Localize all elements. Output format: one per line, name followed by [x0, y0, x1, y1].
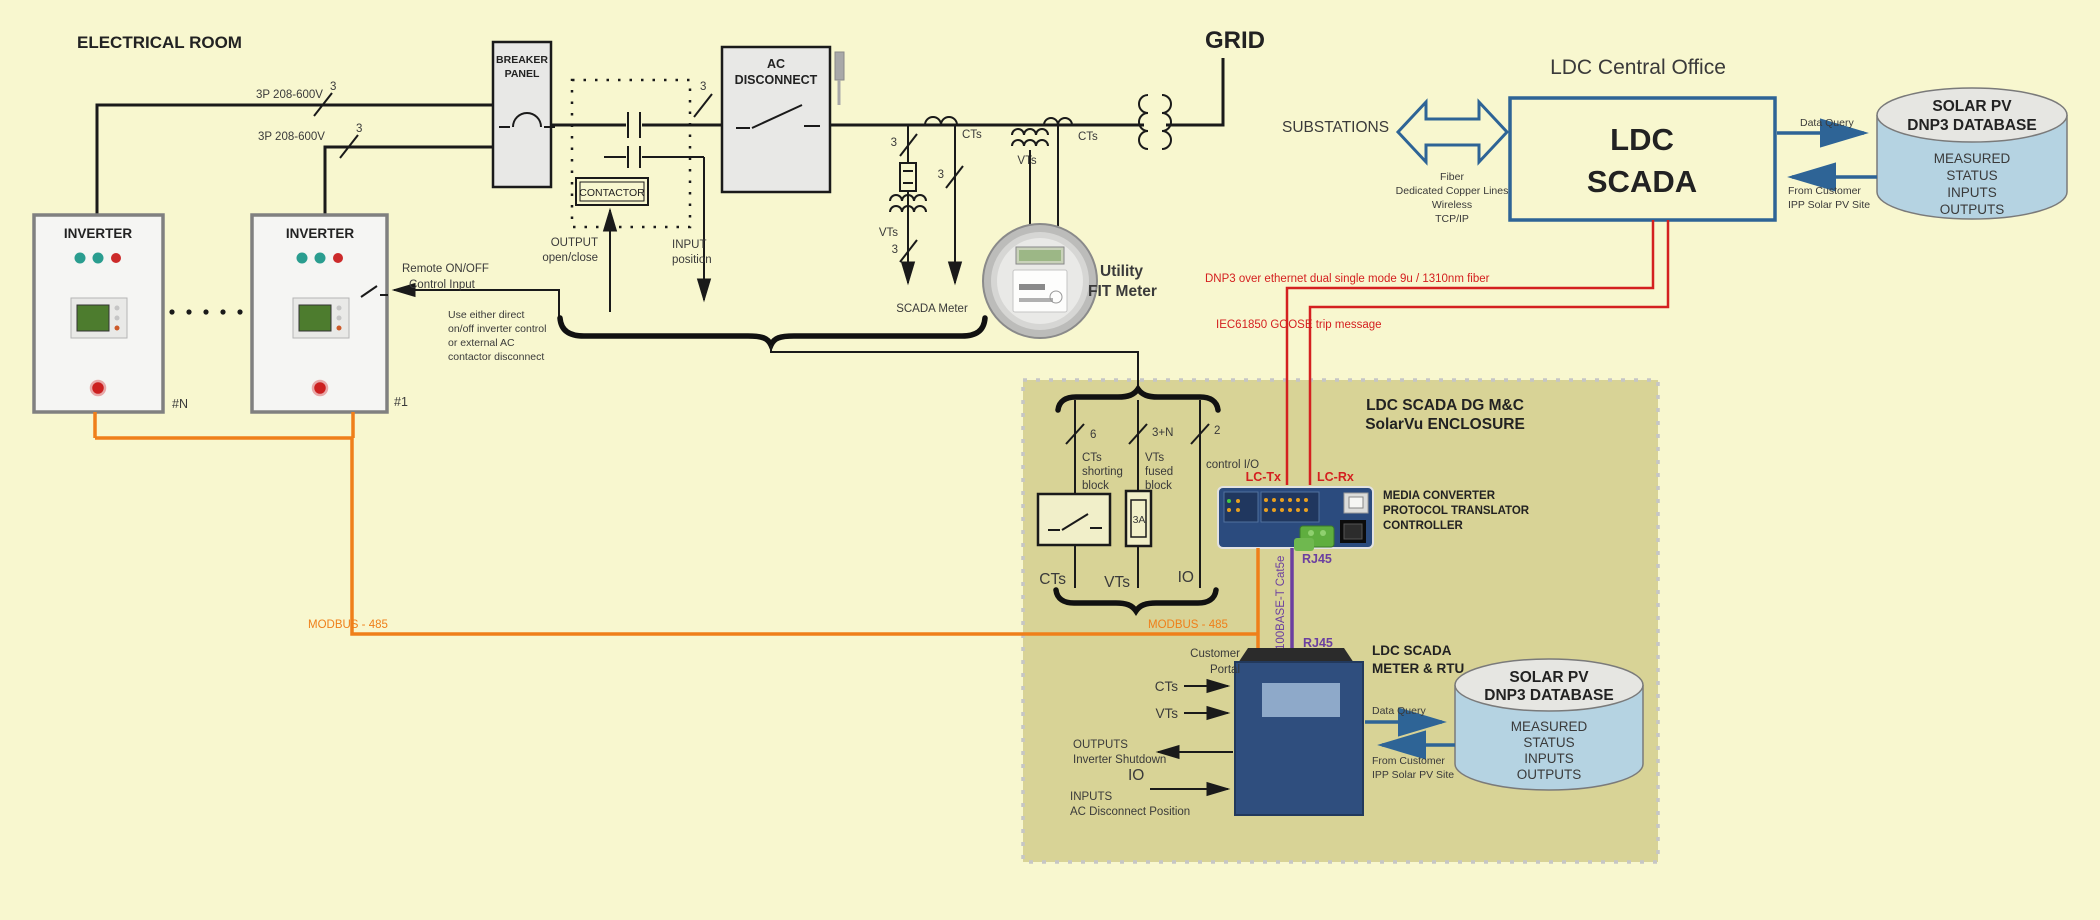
db-title-2: DNP3 DATABASE — [1907, 117, 2036, 134]
output-label-1: OUTPUT — [551, 237, 598, 249]
substations-link-arrow-icon — [1398, 102, 1507, 162]
scada-meter-label: SCADA Meter — [896, 303, 968, 315]
bus-line-2 — [325, 147, 493, 215]
media-converter-label: PROTOCOL TRANSLATOR — [1383, 505, 1530, 517]
vt-bus-label: VTs — [1104, 574, 1130, 591]
status-led — [111, 253, 121, 263]
status-led — [315, 253, 326, 264]
keypad-button — [115, 326, 120, 331]
rj45-slot — [1344, 524, 1362, 539]
ac-disconnect: 3 AC DISCONNECT — [694, 47, 844, 192]
db-row: MEASURED — [1511, 719, 1588, 734]
db-row: INPUTS — [1524, 751, 1574, 766]
db-title-1: SOLAR PV — [1932, 98, 2012, 115]
lcd-screen — [77, 305, 109, 331]
rtu-vts-label: VTs — [1155, 706, 1178, 721]
db-row: OUTPUTS — [1517, 767, 1582, 782]
io-label: control I/O — [1206, 459, 1259, 471]
ct-sense-branch: CTs 3 — [925, 117, 982, 283]
inverter-n: INVERTER #N — [34, 215, 188, 412]
substations-label: SUBSTATIONS — [1282, 119, 1389, 136]
modbus-label-left: MODBUS - 485 — [308, 619, 388, 631]
rj45-bottom-label: RJ45 — [1303, 636, 1333, 650]
inverter-1-unit: #1 — [394, 395, 408, 409]
vt-branch-label: VTs — [879, 227, 898, 239]
ct-branch-count: 3 — [938, 169, 944, 181]
input-label-2: position — [672, 254, 712, 266]
media-converter-label: CONTROLLER — [1383, 520, 1464, 532]
remote-control-input: Remote ON/OFF Control Input Use either d… — [394, 263, 559, 363]
link-type: Fiber — [1440, 171, 1464, 183]
utility-fit-meter: Utility FIT Meter — [983, 224, 1157, 338]
ldc-scada-l2: SCADA — [1587, 164, 1697, 199]
vt-block-label: fused — [1145, 466, 1173, 478]
led — [1236, 508, 1240, 512]
status-led — [93, 253, 104, 264]
rtu-cts-label: CTs — [1155, 679, 1178, 694]
inverter-1: INVERTER #1 — [252, 215, 408, 412]
grid-label: GRID — [1205, 27, 1265, 54]
stop-button — [313, 381, 327, 395]
goose-label: IEC61850 GOOSE trip message — [1216, 319, 1382, 331]
acdisc-label-2: DISCONNECT — [735, 73, 818, 87]
enclosure-title: LDC SCADA DG M&C — [1366, 397, 1524, 414]
inverter-1-label: INVERTER — [286, 226, 355, 241]
status-led — [75, 253, 86, 264]
from-customer-1: From Customer — [1788, 185, 1861, 197]
output-label-2: open/close — [542, 252, 598, 264]
customer-portal-2: Portal — [1210, 664, 1240, 676]
ldc-scada-l1: LDC — [1610, 122, 1674, 157]
io-count: 2 — [1214, 425, 1220, 437]
from-customer-2: IPP Solar PV Site — [1788, 199, 1870, 211]
ct-block-label: block — [1082, 480, 1109, 492]
remote-label-2: Control Input — [409, 279, 476, 291]
transformer-winding-left — [1139, 95, 1148, 149]
note-line: or external AC — [448, 337, 515, 349]
ct-bus-label: CTs — [1039, 571, 1066, 588]
data-query-label: Data Query — [1800, 117, 1854, 129]
ct-block-label: shorting — [1082, 466, 1123, 478]
meter-cts-label: CTs — [1078, 131, 1098, 143]
vt-branch-count-top: 3 — [891, 137, 897, 149]
vt-sense-branch: 3 VTs 3 — [879, 125, 926, 283]
bus1-count: 3 — [330, 81, 336, 93]
power-led — [1227, 499, 1231, 503]
more-inverters-ellipsis — [169, 309, 242, 314]
transformer-winding-right — [1162, 95, 1171, 149]
rtu-label-2: METER & RTU — [1372, 661, 1464, 676]
utility-meter-label-1: Utility — [1100, 263, 1143, 280]
acdisc-label-1: AC — [767, 57, 785, 71]
contactor-label: CONTACTOR — [579, 187, 645, 199]
db-row: STATUS — [1523, 735, 1574, 750]
office-title: LDC Central Office — [1550, 56, 1726, 79]
cat5e-label: 100BASE-T Cat5e — [1275, 556, 1287, 650]
meter-text-lines — [1019, 298, 1053, 302]
meter-nameplate — [1013, 270, 1067, 312]
lc-rx-label: LC-Rx — [1317, 470, 1354, 484]
inverter-n-label: INVERTER — [64, 226, 133, 241]
electrical-room-title: ELECTRICAL ROOM — [77, 33, 242, 52]
ac-bus-lines: 3P 208-600V 3 3P 208-600V 3 — [97, 81, 493, 215]
io-bus-label: IO — [1178, 569, 1194, 586]
link-type: TCP/IP — [1435, 213, 1469, 225]
modbus-label-right: MODBUS - 485 — [1148, 619, 1228, 631]
from-customer-2: IPP Solar PV Site — [1372, 769, 1454, 781]
rtu-lid — [1238, 648, 1354, 663]
rtu-label-1: LDC SCADA — [1372, 643, 1452, 658]
db-row: STATUS — [1946, 168, 1997, 183]
led-panel-left — [1224, 492, 1258, 522]
dnp3-label: DNP3 over ethernet dual single mode 9u /… — [1205, 273, 1490, 285]
keypad-button — [115, 316, 120, 321]
utility-meter-sensing: VTs CTs — [1012, 118, 1098, 226]
link-type: Dedicated Copper Lines — [1396, 185, 1509, 197]
inputs-label-1: INPUTS — [1070, 791, 1113, 803]
vt-coil-icon — [1012, 140, 1048, 146]
lc-tx-label: LC-Tx — [1246, 470, 1281, 484]
link-types: Fiber Dedicated Copper Lines Wireless TC… — [1396, 171, 1509, 225]
usb-slot — [1349, 497, 1363, 508]
breaker-panel: BREAKER PANEL — [493, 42, 555, 187]
db-title-2: DNP3 DATABASE — [1484, 687, 1613, 704]
inputs-label-2: AC Disconnect Position — [1070, 806, 1190, 818]
ct-branch-label: CTs — [962, 129, 982, 141]
led — [1236, 499, 1240, 503]
db-title-1: SOLAR PV — [1509, 669, 1589, 686]
rj45-top-label: RJ45 — [1302, 552, 1332, 566]
data-query-label: Data Query — [1372, 705, 1426, 717]
terminal-hole — [1320, 530, 1326, 536]
outputs-label-1: OUTPUTS — [1073, 739, 1128, 751]
keypad-button — [337, 316, 342, 321]
vt-branch-count-bottom: 3 — [892, 244, 898, 256]
db-row: OUTPUTS — [1940, 202, 2005, 217]
note-line: contactor disconnect — [448, 351, 544, 363]
vt-coil-icon — [1012, 129, 1048, 135]
bus-line-1 — [97, 105, 493, 215]
outputs-label-2: Inverter Shutdown — [1073, 754, 1166, 766]
db-row: INPUTS — [1947, 185, 1997, 200]
keypad-button — [115, 306, 120, 311]
phase-slash-3 — [694, 94, 712, 117]
fuse-rating: 3A — [1133, 514, 1146, 526]
local-dnp3-database: SOLAR PV DNP3 DATABASE MEASURED STATUS I… — [1455, 659, 1643, 790]
note-line: Use either direct — [448, 309, 525, 321]
link-type: Wireless — [1432, 199, 1472, 211]
lcd-screen — [299, 305, 331, 331]
ct-block-label: CTs — [1082, 452, 1102, 464]
status-led — [333, 253, 343, 263]
inverter-n-unit: #N — [172, 397, 188, 411]
meter-vts-label: VTs — [1017, 155, 1036, 167]
remote-label-1: Remote ON/OFF — [402, 263, 489, 275]
ldc-scada-box: LDC SCADA — [1510, 98, 1775, 220]
bus1-label: 3P 208-600V — [256, 89, 323, 101]
breaker-label-2: PANEL — [505, 68, 540, 80]
vt-count: 3+N — [1152, 427, 1173, 439]
meter-lcd-digits — [1019, 250, 1061, 261]
enclosure-subtitle: SolarVu ENCLOSURE — [1365, 416, 1525, 433]
meter-barcode — [1019, 284, 1045, 290]
ldc-scada-border — [1510, 98, 1775, 220]
db-row: MEASURED — [1934, 151, 2011, 166]
bus2-label: 3P 208-600V — [258, 131, 325, 143]
from-customer-1: From Customer — [1372, 755, 1445, 767]
led-panel-grid — [1261, 492, 1319, 522]
led — [1227, 508, 1231, 512]
main-line-seg2 — [830, 58, 1223, 125]
vt-block-label: VTs — [1145, 452, 1164, 464]
terminal-hood — [1294, 538, 1314, 551]
terminal-hole — [1308, 530, 1314, 536]
utility-meter-label-2: FIT Meter — [1088, 283, 1157, 300]
grid-transformer: GRID — [1139, 27, 1265, 149]
ct-shorting-block-box — [1038, 494, 1110, 545]
keypad-button — [337, 306, 342, 311]
customer-portal-1: Customer — [1190, 648, 1240, 660]
breaker-label-1: BREAKER — [496, 54, 548, 66]
input-label-1: INPUT — [672, 239, 707, 251]
stop-button — [91, 381, 105, 395]
central-db-links: Data Query From Customer IPP Solar PV Si… — [1777, 117, 1877, 211]
scada-solar-diagram: LDC SCADA DG M&C SolarVu ENCLOSURE ELECT… — [0, 0, 2100, 920]
rtu-screen — [1262, 683, 1340, 717]
gather-brace — [560, 318, 985, 345]
media-converter-label: MEDIA CONVERTER — [1383, 490, 1496, 502]
note-line: on/off inverter control — [448, 323, 546, 335]
bus2-count: 3 — [356, 123, 362, 135]
central-dnp3-database: SOLAR PV DNP3 DATABASE MEASURED STATUS I… — [1877, 88, 2067, 219]
keypad-button — [337, 326, 342, 331]
acdisc-count: 3 — [700, 81, 706, 93]
ct-count: 6 — [1090, 429, 1096, 441]
fuse-icon — [900, 163, 916, 191]
status-led — [297, 253, 308, 264]
rtu-io-label: IO — [1128, 767, 1144, 784]
handle-icon — [835, 52, 844, 80]
